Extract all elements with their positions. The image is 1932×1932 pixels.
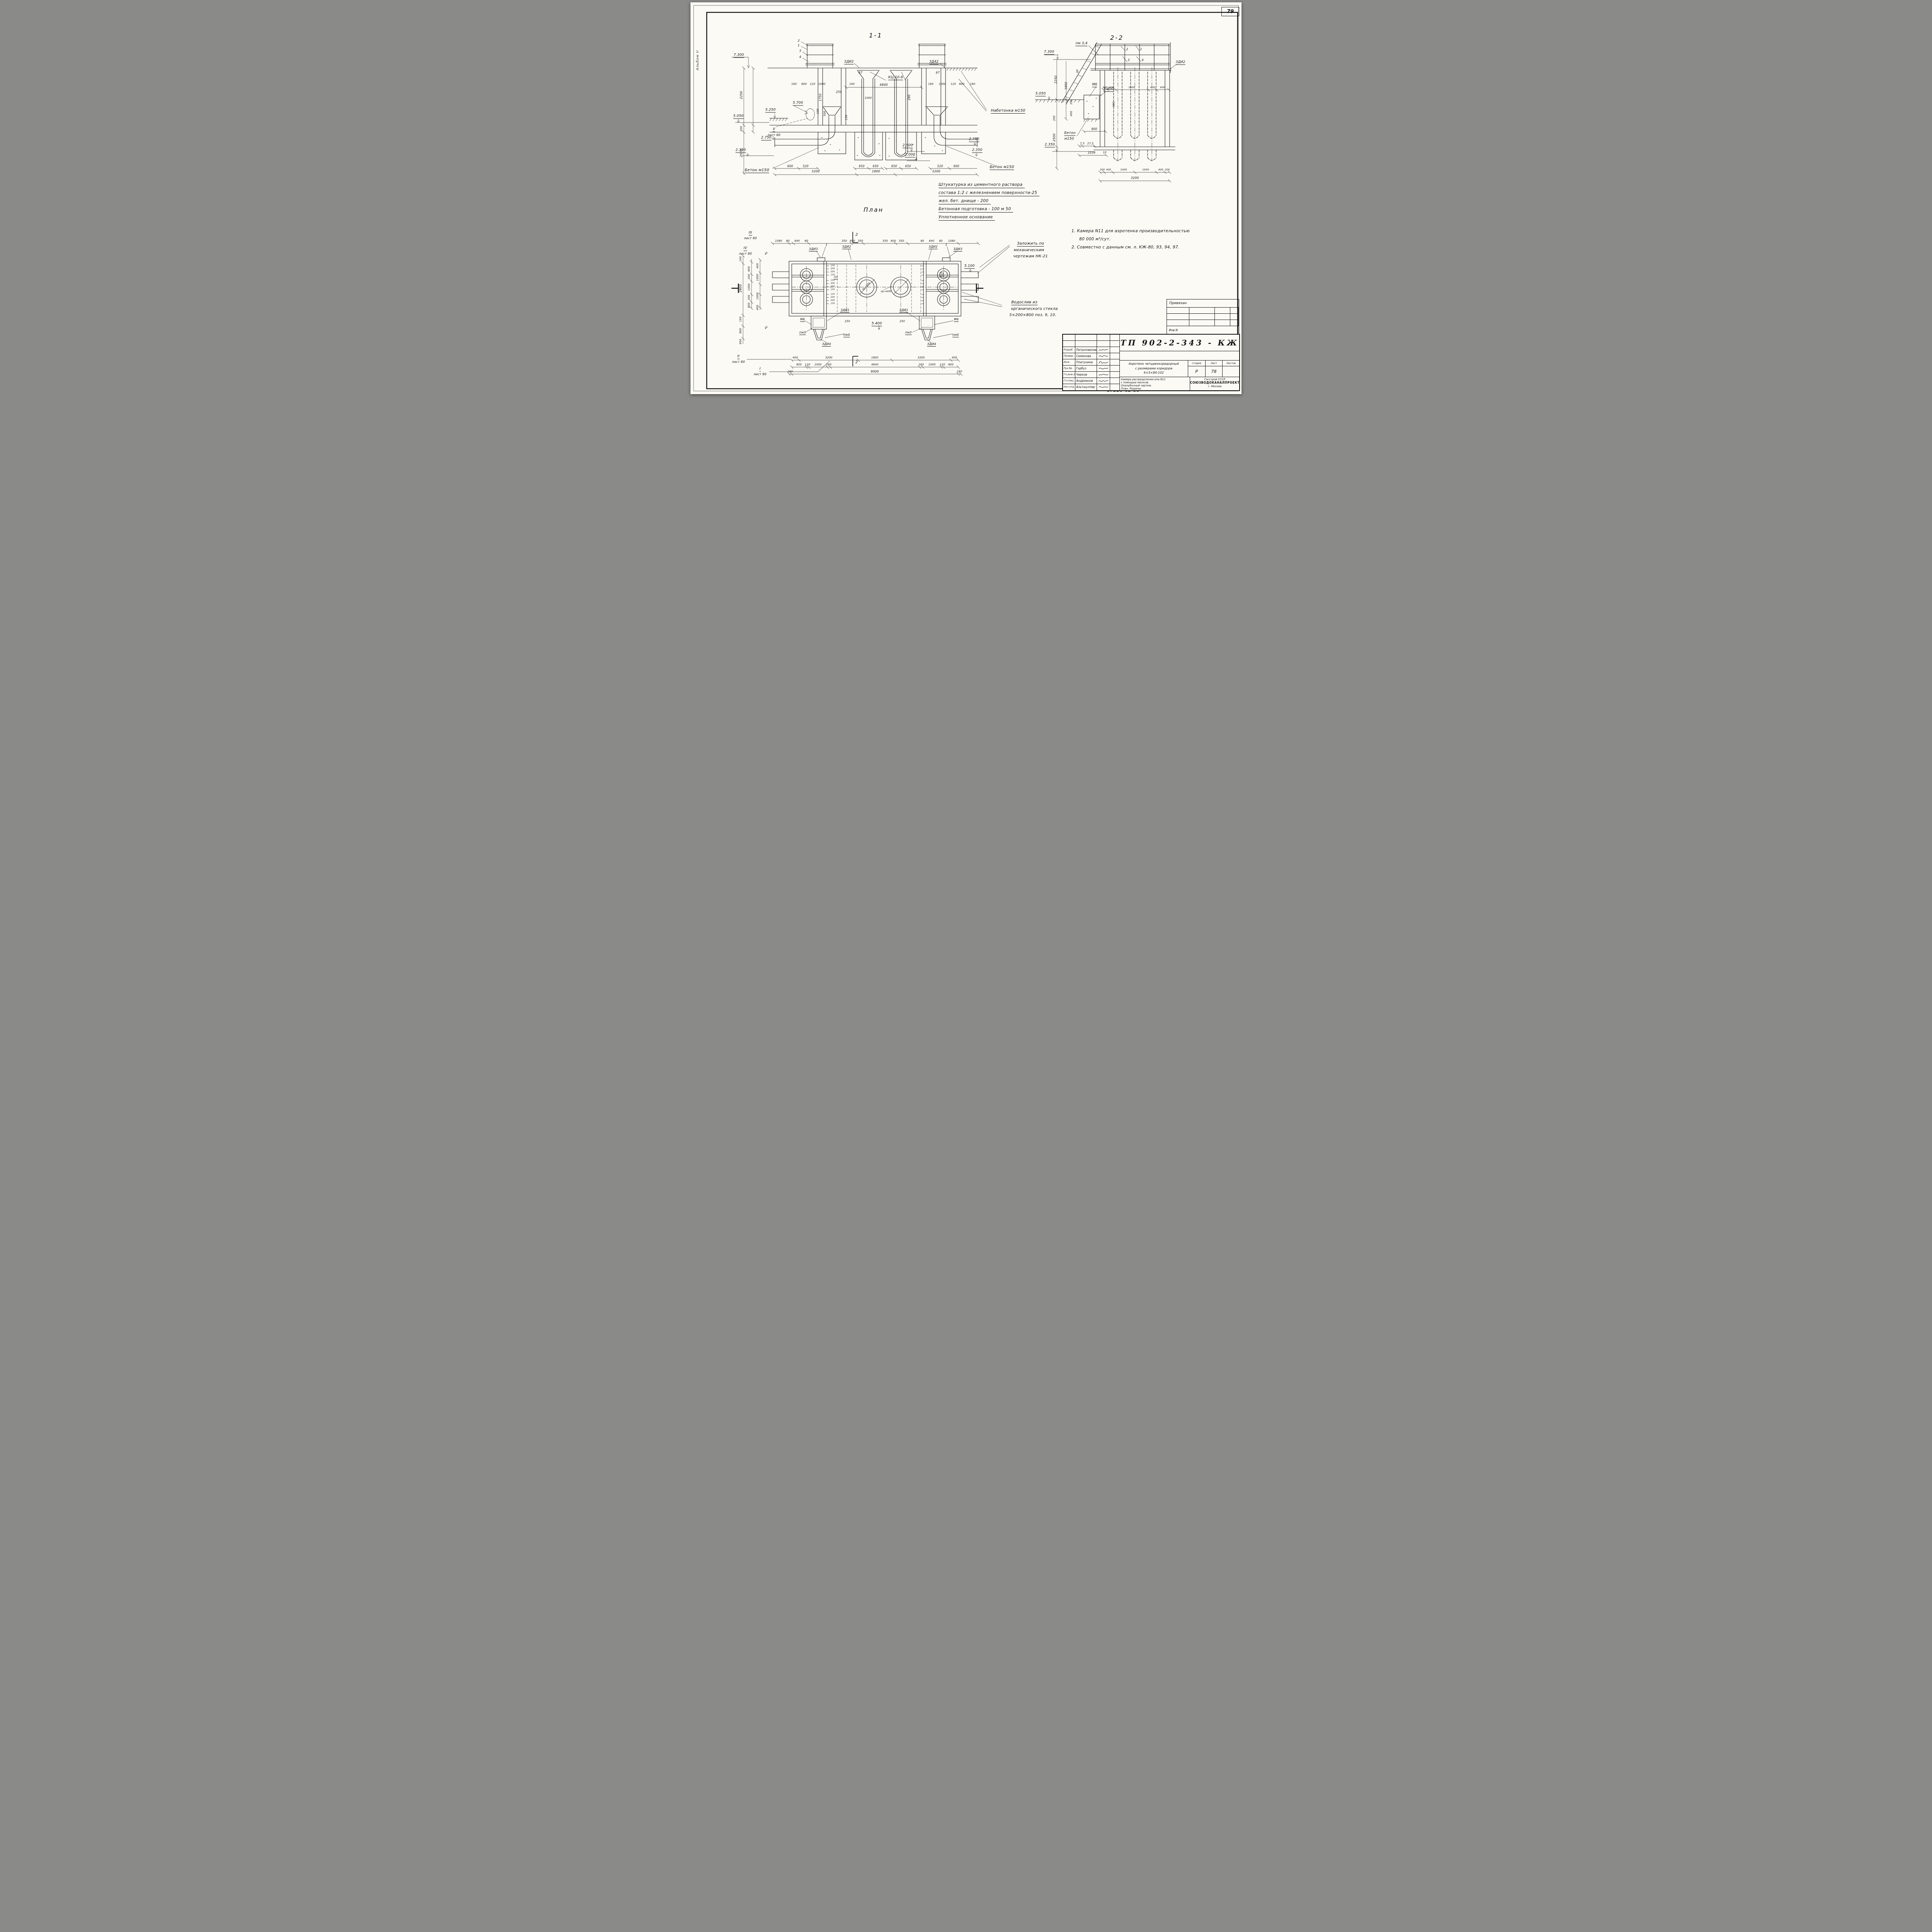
title-block-empty-band [1120, 351, 1240, 361]
project-title: Аэротенк четырехкоридорный с размерами к… [1120, 361, 1188, 377]
dim-label: лист 80 [753, 373, 767, 376]
reference-table-grid [1167, 308, 1239, 326]
dim-label: 350 [899, 240, 904, 243]
dim-label: ЗДИ3 [809, 248, 818, 252]
dim-label: 3200 [918, 357, 925, 359]
dim-label: лист 80 [744, 237, 757, 240]
dim-label: 130 [830, 279, 835, 282]
dim-label: ЗДИ2 [842, 245, 851, 249]
dim-label: 120 [940, 364, 945, 366]
dim-label: 5×200×800 поз. 9, 10. [1009, 313, 1056, 317]
dim-label: 130 [830, 293, 835, 296]
inventory-number-label: Инв.N [1167, 326, 1239, 334]
dim-label: механическим [1014, 248, 1044, 252]
dim-label: 130 [830, 274, 835, 276]
note-line: состава 1:2 с железнением поверхности-25 [939, 190, 1039, 196]
dim-label: IV [743, 247, 747, 251]
note-line: Уплотненное основание [939, 215, 995, 221]
note-line: 1. Камера N11 для аэротенка производител… [1071, 229, 1190, 233]
reference-table: Привязан Инв.N [1167, 299, 1239, 335]
dim-label: 80 [920, 240, 924, 243]
dim-label: ЗДИ4 [927, 343, 936, 347]
signature-row: Провер.Семенова [1063, 353, 1119, 359]
signature-row: Рук.бр.Горбуз [1063, 366, 1119, 372]
dim-label: 1000 [757, 293, 759, 300]
signature-row: Гл.спец.Андрианов [1063, 378, 1119, 384]
signature-icon [1099, 348, 1109, 352]
note-line: Бетонная подготовка - 100 м 50 [939, 207, 1013, 213]
dim-label: 840 [794, 240, 800, 243]
dim-label: 800 [748, 303, 751, 308]
page-number: 79 [1221, 7, 1239, 16]
dim-label: 200 [830, 268, 835, 270]
dim-label: 350 [842, 240, 847, 243]
dim-label: 4840 [871, 364, 879, 366]
dim-label: ЗДИ1 [899, 309, 908, 313]
signature-icon [1099, 354, 1109, 359]
dim-label: 130 [830, 303, 835, 305]
dim-label: 1800 [871, 357, 879, 359]
dim-label: 200 [830, 282, 835, 285]
reference-table-header: Привязан [1167, 299, 1239, 308]
signature-row: Инж.Платунина [1063, 359, 1119, 366]
dim-label: 1000 [748, 284, 751, 291]
drawing-sheet: 7.300225020025002134ЗДИ2ЗД426767КЦ-10-64… [690, 2, 1242, 394]
dim-label: 160 [826, 364, 832, 366]
dim-label: 400 [757, 305, 759, 310]
signature-icon [1099, 366, 1109, 371]
dim-label: 1000 [815, 364, 822, 366]
signature-row: Разраб.Петропавловская [1063, 347, 1119, 353]
dim-label: 130 [830, 289, 835, 291]
document-number: ТП 902-2-343 - КЖ [1120, 335, 1240, 351]
dim-label: 160 [787, 371, 793, 373]
dim-label: 250 [845, 320, 850, 323]
signature-icon [1099, 385, 1109, 389]
dim-label: пм3 [799, 331, 806, 335]
dim-label: лист 80 [739, 252, 752, 255]
dim-label: 80 [939, 240, 942, 243]
signature-icon [1099, 360, 1109, 365]
organization: Госстрой СССР СОЮЗВОДОКАНАЛПРОЕКТ г. Мос… [1190, 377, 1240, 390]
note-line: жел. бет. днище - 200 [939, 199, 991, 204]
dim-label: 400 [793, 357, 798, 359]
dim-label: 250 [900, 320, 905, 323]
dim-label: органического стекла [1011, 307, 1058, 311]
dim-label: 5.100 [964, 265, 975, 269]
section-2-2-title: 2-2 [1110, 34, 1124, 41]
dim-label: 40 [764, 326, 769, 330]
dim-label: 600 [850, 240, 855, 243]
dim-label: 400 [757, 263, 759, 269]
sheet-value: 78 [1206, 366, 1223, 377]
dim-label: 200 [830, 286, 835, 288]
dim-label: 840 [929, 240, 934, 243]
dim-label: 200 [830, 299, 835, 302]
dim-label: Заложить по [1017, 242, 1044, 247]
dim-label: 80 [786, 240, 789, 243]
sheet-header: Лист [1206, 361, 1223, 366]
dim-label: 800 [740, 328, 742, 333]
dim-label: 2 [855, 233, 858, 237]
note-line: 2. Совместно с данным см. л. КЖ-80, 93, … [1071, 245, 1190, 250]
signature-row: Гл.инж.пр.Чирков [1063, 372, 1119, 378]
section-1-1-title: 1-1 [869, 32, 883, 39]
drawing-title: Камера распределения ила N11 с помощью н… [1120, 377, 1190, 390]
dim-label: 1080 [775, 240, 782, 243]
dim-label: 2800 [739, 284, 742, 292]
dim-label: М6 [800, 318, 805, 322]
stage-header: стадия [1188, 361, 1206, 366]
dim-label: 1 [825, 243, 827, 247]
dim-label: М6 [954, 318, 959, 322]
stage-value: Р [1188, 366, 1206, 377]
dim-label: 200 [830, 271, 835, 273]
dim-label: 2 [855, 361, 858, 364]
dim-label: 40 [764, 252, 769, 256]
dim-label: 600 [740, 339, 742, 344]
general-notes: 1. Камера N11 для аэротенка производител… [1071, 229, 1190, 253]
dim-label: II [737, 355, 740, 359]
dim-label: 120 [805, 364, 810, 366]
dim-label: 800 [748, 266, 751, 272]
dim-label: 130 [830, 265, 835, 267]
title-block: Разраб.Петропавловская Провер.Семенова И… [1062, 334, 1240, 391]
dim-label: 350 [883, 240, 888, 243]
dim-label: ЗДИ1 [840, 309, 849, 313]
dim-label: 800 [948, 364, 954, 366]
dim-label: 80 [804, 240, 808, 243]
dim-label: 800 [796, 364, 802, 366]
dim-label: 400 [952, 357, 957, 359]
signature-icon [1099, 372, 1109, 377]
signature-row: Нач.отд.Альтшуллер [1063, 384, 1119, 390]
stage-sheet-grid: стадия Лист Листов Р 78 [1188, 361, 1240, 377]
dim-label: чертежам НК-21 [1013, 255, 1048, 259]
dim-label: пм3 [905, 331, 912, 335]
dim-label: 160 [740, 316, 742, 322]
dim-label: 200 [748, 295, 751, 300]
dim-label: 200 [830, 296, 835, 299]
dim-label: dу=800 [862, 282, 871, 291]
dim-label: 5.400 [872, 322, 882, 327]
dim-label: ЗДИ4 [822, 343, 831, 347]
sheets-value [1223, 366, 1240, 377]
signature-icon [1099, 379, 1109, 383]
dim-label: 3200 [825, 357, 833, 359]
dim-label: 9000 [871, 370, 879, 373]
dim-label: Водослив из [1011, 301, 1037, 305]
dim-label: dу=600 [881, 290, 891, 293]
title-block-signatures: Разраб.Петропавловская Провер.Семенова И… [1063, 335, 1120, 390]
dim-label: ЗДИ3 [953, 248, 962, 252]
dim-label: ЗДИ2 [929, 245, 937, 249]
dim-label: 1000 [757, 274, 759, 281]
dim-label: лист 80 [732, 361, 745, 364]
note-line: Штукатурка из цементного раствора [939, 182, 1025, 188]
dim-label: пм4 [844, 333, 850, 337]
album-margin-text: Альбом II [696, 20, 700, 70]
dim-label: пм4 [952, 333, 959, 337]
dim-label: 200 [748, 274, 751, 279]
dim-label: 160 [957, 371, 962, 373]
sheets-header: Листов [1223, 361, 1240, 366]
dim-label: III [749, 231, 752, 236]
dim-label: 600 [891, 240, 896, 243]
dim-label: 160 [740, 256, 742, 262]
dim-label: 350 [858, 240, 863, 243]
dim-label: 160 [918, 364, 924, 366]
dim-label: 1 [945, 243, 947, 247]
dim-label: ПЗ [939, 272, 944, 276]
dim-label: 1000 [929, 364, 936, 366]
note-line: 80 000 м³/сут. [1071, 237, 1190, 241]
dim-label: I [760, 367, 761, 372]
plan-title: План [864, 206, 884, 213]
dim-label: 1080 [948, 240, 956, 243]
material-notes: Штукатурка из цементного раствора состав… [939, 182, 1039, 223]
